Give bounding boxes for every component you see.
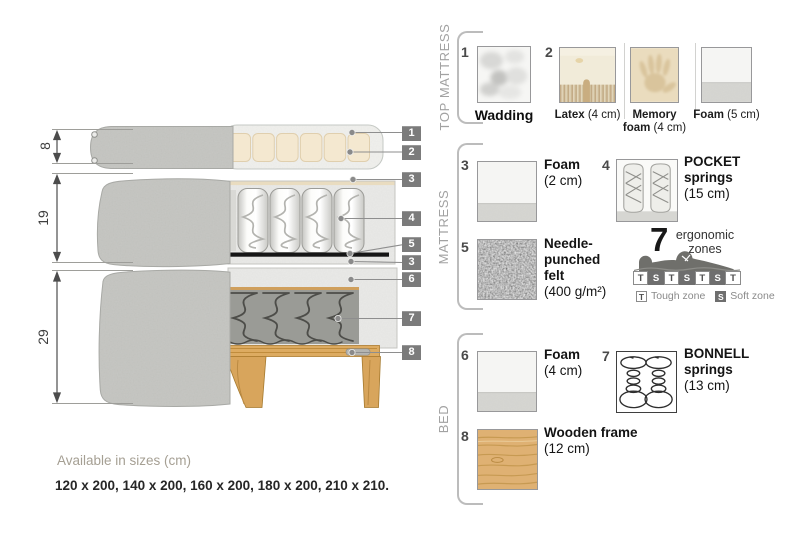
- button: [92, 132, 98, 138]
- bonnell-springs-thumbnail: [616, 351, 677, 413]
- item-number-7: 7: [602, 348, 610, 364]
- foam-4cm-thumbnail: [477, 351, 537, 412]
- button: [92, 158, 98, 164]
- latex-thumbnail: [559, 47, 616, 103]
- bonnell-springs-name: BONNELL springs: [684, 346, 768, 378]
- section-title-top-mattress: TOP MATTRESS: [437, 2, 453, 152]
- mattress-fabric: [97, 179, 230, 267]
- wooden-frame-text: Wooden frame (12 cm): [544, 425, 674, 457]
- zone-box-tough: T: [695, 271, 710, 285]
- zone-strip: T S T S T S T: [633, 271, 741, 285]
- option-divider: [695, 43, 696, 119]
- legend-tough-label: Tough zone: [651, 290, 705, 302]
- zone-box-tough: T: [633, 271, 648, 285]
- callout-tag-3b: 3: [402, 255, 421, 270]
- item-number-2: 2: [545, 44, 553, 60]
- foam-5cm-name: Foam: [693, 109, 724, 121]
- foam-5cm-thumbnail: [701, 47, 752, 103]
- wadding-thumbnail: [477, 46, 531, 103]
- latex-detail: (4 cm): [588, 109, 621, 121]
- zone-box-soft: S: [679, 271, 694, 285]
- dimension-arrows: [54, 132, 60, 402]
- ergonomic-label-line1: ergonomic: [672, 229, 738, 243]
- zone-legend: T Tough zone S Soft zone: [636, 290, 775, 302]
- available-sizes-list: 120 x 200, 140 x 200, 160 x 200, 180 x 2…: [55, 478, 389, 493]
- option-divider: [624, 43, 625, 119]
- latex-caption: Latex (4 cm): [546, 109, 629, 122]
- felt-detail: (400 g/m²): [544, 284, 624, 300]
- pocket-springs-detail: (15 cm): [684, 186, 768, 202]
- latex-name: Latex: [555, 109, 585, 121]
- foam-2cm-detail: (2 cm): [544, 173, 614, 189]
- callout-tag-7: 7: [402, 311, 421, 326]
- bonnell-springs-text: BONNELL springs (13 cm): [684, 346, 768, 394]
- diagram-bed: [99, 268, 397, 408]
- bonnell-springs-detail: (13 cm): [684, 378, 768, 394]
- pocket-springs-thumbnail: [616, 159, 678, 222]
- zone-box-tough: T: [725, 271, 740, 285]
- dimension-value-29: 29: [35, 326, 51, 348]
- bed-fabric: [99, 270, 230, 406]
- felt-layer: [227, 253, 389, 257]
- zone-box-soft: S: [710, 271, 725, 285]
- zone-box-tough: T: [664, 271, 679, 285]
- available-sizes-title: Available in sizes (cm): [57, 453, 191, 468]
- item-number-3: 3: [461, 157, 469, 173]
- memory-foam-caption: Memory foam (4 cm): [621, 109, 688, 135]
- callout-tag-6: 6: [402, 272, 421, 287]
- callout-tag-1: 1: [402, 126, 421, 141]
- section-title-mattress: MATTRESS: [436, 152, 452, 302]
- felt-text: Needle-punched felt (400 g/m²): [544, 236, 624, 300]
- wooden-frame-thumbnail: [477, 429, 538, 490]
- wooden-frame-name: Wooden frame: [544, 425, 674, 441]
- legend-soft-symbol: S: [715, 291, 726, 302]
- foam-4cm-detail: (4 cm): [544, 363, 614, 379]
- dimension-value-8: 8: [37, 135, 53, 157]
- pocket-springs-name: POCKET springs: [684, 154, 768, 186]
- top-mattress-fabric: [91, 127, 234, 169]
- wooden-frame: [226, 346, 381, 408]
- legend-tough-symbol: T: [636, 291, 647, 302]
- person-silhouette-icon: [634, 249, 740, 272]
- callout-tag-2: 2: [402, 145, 421, 160]
- wadding-caption: Wadding: [460, 109, 548, 122]
- memory-foam-thumbnail: [630, 47, 679, 103]
- dimension-value-19: 19: [35, 207, 51, 229]
- diagram-top-mattress: [91, 125, 384, 169]
- foam-5cm-detail: (5 cm): [727, 109, 760, 121]
- legend-soft-label: Soft zone: [730, 290, 774, 302]
- memory-foam-detail: (4 cm): [654, 122, 687, 134]
- zone-box-soft: S: [648, 271, 663, 285]
- callout-tag-8: 8: [402, 345, 421, 360]
- item-number-1: 1: [461, 44, 469, 60]
- foam-5cm-caption: Foam (5 cm): [692, 109, 761, 122]
- callout-tag-4: 4: [402, 211, 421, 226]
- callout-tag-5: 5: [402, 237, 421, 252]
- foam-2cm-thumbnail: [477, 161, 537, 222]
- pocket-springs-text: POCKET springs (15 cm): [684, 154, 768, 202]
- item-number-8: 8: [461, 428, 469, 444]
- section-title-bed: BED: [436, 344, 452, 494]
- wooden-frame-detail: (12 cm): [544, 441, 674, 457]
- bed-construction-infographic: 8 19 29 1 2 3 4 5 3 6 7 8 Available in s…: [0, 0, 800, 533]
- item-number-6: 6: [461, 347, 469, 363]
- felt-name: Needle-punched felt: [544, 236, 624, 284]
- callout-tag-3: 3: [402, 172, 421, 187]
- item-number-5: 5: [461, 239, 469, 255]
- item-number-4: 4: [602, 157, 610, 173]
- felt-thumbnail: [477, 239, 537, 300]
